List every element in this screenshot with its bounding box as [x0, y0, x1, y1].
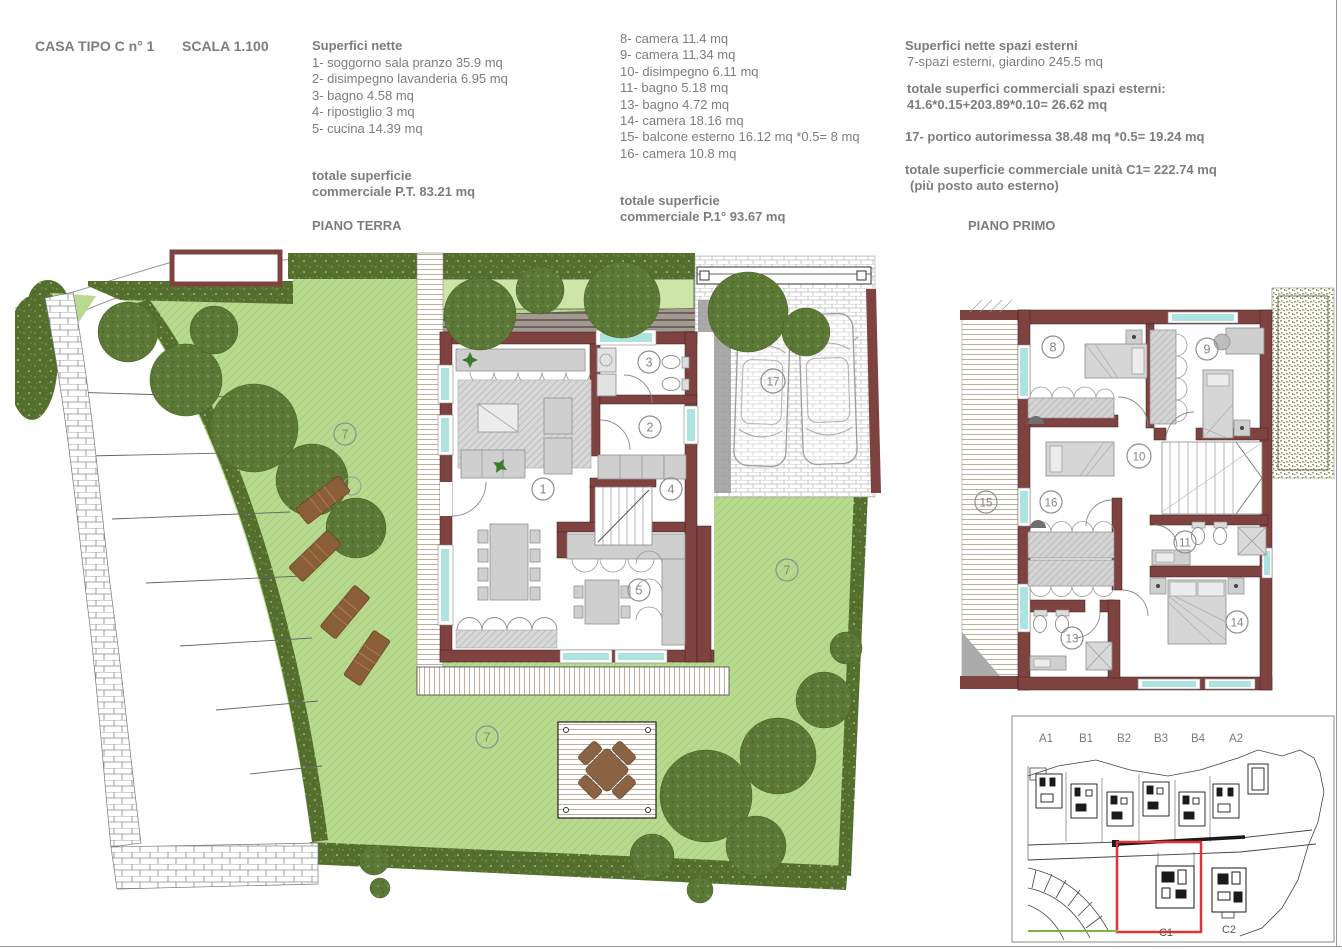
- site-gar: [1248, 764, 1268, 794]
- house-ground-floor: [438, 330, 714, 663]
- site-house-c2: [1212, 868, 1246, 918]
- svg-text:15: 15: [980, 498, 993, 510]
- external-garden-line: 7-spazi esterni, giardino 245.5 mq: [907, 54, 1103, 70]
- unit-label: B1: [1079, 733, 1093, 745]
- ground-floor-label: PIANO TERRA: [312, 218, 402, 234]
- ground-total-line1: totale superficie: [312, 168, 412, 184]
- site-house: [1107, 792, 1133, 826]
- legend-external-heading: Superfici nette spazi esterni: [905, 38, 1078, 54]
- page-right-edge: [1336, 0, 1337, 946]
- ground-floor-plan: 1 2 3 4 5 7 7 7 17: [15, 243, 910, 950]
- vegetation-strip: [1272, 288, 1334, 478]
- unit-label: B3: [1154, 733, 1168, 745]
- svg-text:17: 17: [767, 377, 780, 389]
- svg-text:8: 8: [1050, 341, 1057, 355]
- first-total-line2: commerciale P.1° 93.67 mq: [620, 209, 785, 225]
- legend-ground-heading: Superfici nette: [312, 38, 402, 54]
- site-house-c1: [1156, 866, 1194, 908]
- legend-line: 1- soggorno sala pranzo 35.9 mq: [312, 55, 508, 71]
- legend-line: 8- camera 11.4 mq: [620, 31, 860, 47]
- first-floor-label: PIANO PRIMO: [968, 218, 1055, 234]
- svg-text:7: 7: [484, 731, 491, 745]
- legend-first-items: 8- camera 11.4 mq 9- camera 11.34 mq 10-…: [620, 31, 860, 162]
- ground-total-line2: commerciale P.T. 83.21 mq: [312, 184, 475, 200]
- legend-line: 5- cucina 14.39 mq: [312, 121, 508, 137]
- c1-label: C1: [1159, 927, 1173, 939]
- svg-text:11: 11: [1179, 538, 1191, 550]
- legend-line: 14- camera 18.16 mq: [620, 113, 860, 129]
- site-key-map: A1 B1 B2 B3 B4 A2: [1008, 712, 1338, 946]
- external-total-formula: 41.6*0.15+203.89*0.10= 26.62 mq: [907, 97, 1107, 113]
- svg-text:10: 10: [1133, 452, 1146, 464]
- site-house: [1213, 784, 1239, 818]
- svg-text:4: 4: [668, 483, 675, 497]
- unit-label: B4: [1191, 733, 1206, 745]
- svg-text:3: 3: [646, 356, 653, 370]
- entry-planter: [172, 252, 280, 284]
- external-unit-total-note: (più posto auto esterno): [910, 178, 1059, 194]
- site-house: [1179, 792, 1205, 826]
- svg-text:5: 5: [636, 584, 643, 598]
- site-house: [1071, 784, 1097, 818]
- legend-line: 15- balcone esterno 16.12 mq *0.5= 8 mq: [620, 129, 860, 145]
- legend-line: 2- disimpegno lavanderia 6.95 mq: [312, 71, 508, 87]
- legend-line: 10- disimpegno 6.11 mq: [620, 64, 860, 80]
- unit-label: A2: [1229, 733, 1243, 745]
- site-house: [1036, 774, 1062, 808]
- legend-line: 4- ripostiglio 3 mq: [312, 104, 508, 120]
- plan-scale: SCALA 1.100: [182, 38, 269, 54]
- stairs-first: [1162, 442, 1262, 514]
- svg-text:7: 7: [342, 428, 349, 442]
- plan-title: CASA TIPO C n° 1: [35, 38, 154, 54]
- external-total-heading: totale superfici commerciali spazi ester…: [907, 81, 1166, 97]
- external-unit-total: totale superficie commerciale unità C1= …: [905, 162, 1217, 178]
- first-total-line1: totale superficie: [620, 193, 720, 209]
- legend-ground-items: 1- soggorno sala pranzo 35.9 mq 2- disim…: [312, 55, 508, 137]
- south-walkway: [417, 667, 729, 695]
- svg-text:2: 2: [647, 421, 654, 435]
- site-house: [1143, 782, 1169, 816]
- entry-walkway: [417, 253, 443, 695]
- pergola: [558, 722, 656, 818]
- stairs: [595, 487, 652, 545]
- unit-label: A1: [1039, 733, 1053, 745]
- unit-label: B2: [1117, 733, 1131, 745]
- legend-line: 3- bagno 4.58 mq: [312, 88, 508, 104]
- balcony: [960, 300, 1018, 689]
- external-portico-line: 17- portico autorimessa 38.48 mq *0.5= 1…: [905, 129, 1205, 145]
- room-label-disimpegno10: 10: [1127, 444, 1151, 468]
- legend-line: 9- camera 11.34 mq: [620, 47, 860, 63]
- legend-line: 11- bagno 5.18 mq: [620, 80, 860, 96]
- legend-line: 13- bagno 4.72 mq: [620, 97, 860, 113]
- drawing-sheet: CASA TIPO C n° 1 SCALA 1.100 Superfici n…: [0, 0, 1342, 950]
- first-floor-plan: 8 9 10 11 13 14 15 16: [950, 270, 1342, 710]
- svg-text:16: 16: [1045, 498, 1058, 510]
- svg-text:1: 1: [540, 483, 547, 497]
- c2-label: C2: [1222, 924, 1236, 936]
- svg-text:7: 7: [784, 564, 791, 578]
- svg-text:13: 13: [1066, 634, 1079, 646]
- svg-text:9: 9: [1204, 343, 1211, 357]
- page-bottom-edge: [0, 946, 1342, 947]
- svg-text:14: 14: [1231, 618, 1244, 630]
- legend-line: 16- camera 10.8 mq: [620, 146, 860, 162]
